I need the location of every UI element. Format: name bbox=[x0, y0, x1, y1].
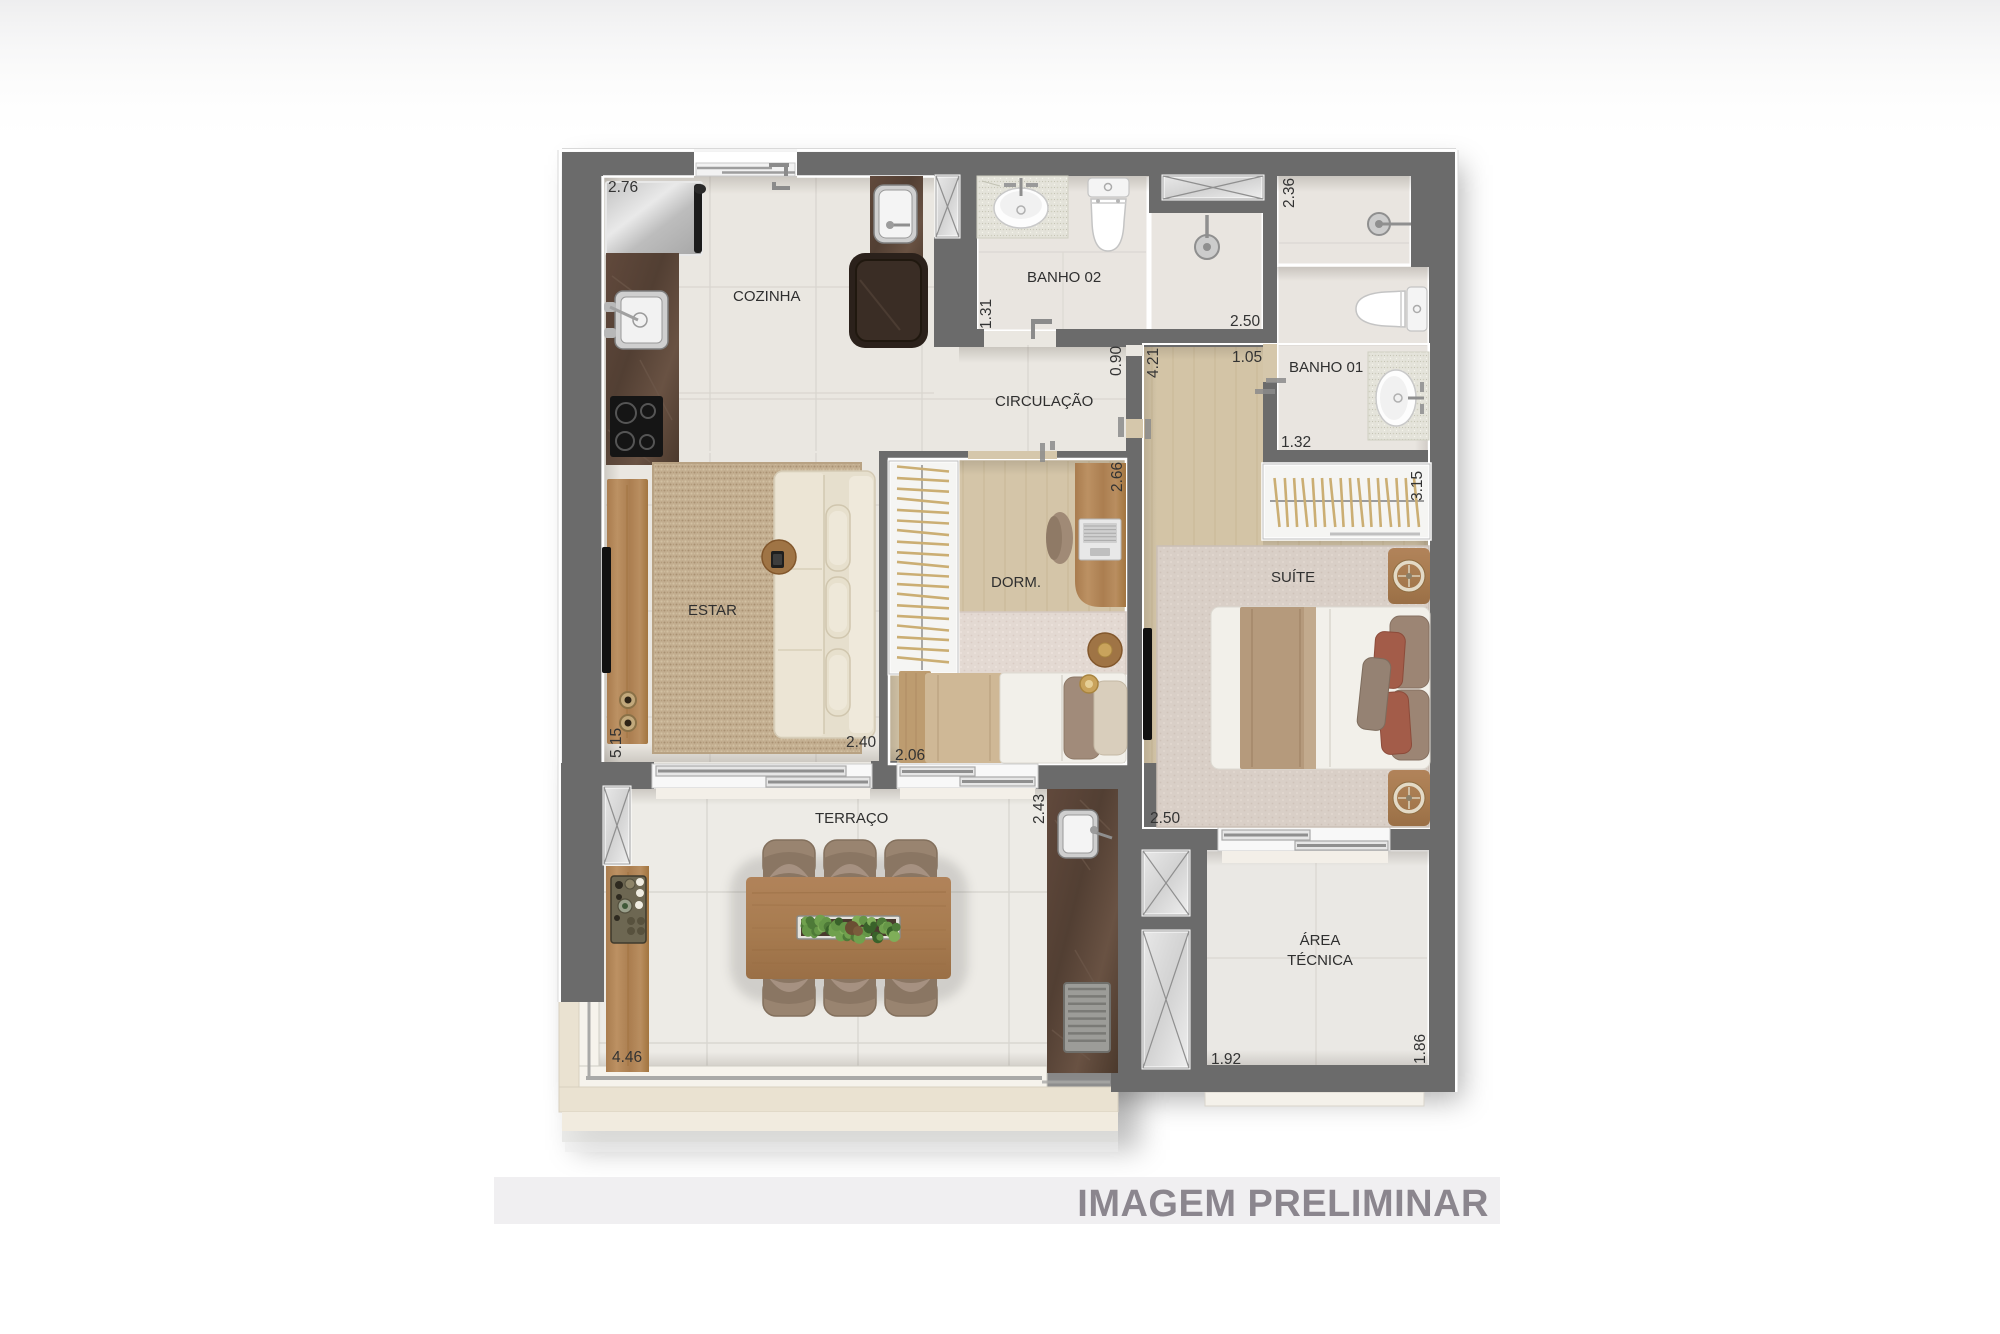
svg-text:ESTAR: ESTAR bbox=[688, 602, 737, 619]
svg-text:TERRAÇO: TERRAÇO bbox=[815, 810, 888, 827]
svg-text:4.46: 4.46 bbox=[612, 1049, 642, 1066]
svg-text:2.50: 2.50 bbox=[1150, 810, 1181, 827]
svg-text:2.06: 2.06 bbox=[895, 747, 925, 764]
svg-text:BANHO 01: BANHO 01 bbox=[1289, 359, 1363, 376]
svg-text:2.36: 2.36 bbox=[1281, 178, 1298, 208]
svg-text:5.15: 5.15 bbox=[608, 728, 625, 758]
svg-text:BANHO 02: BANHO 02 bbox=[1027, 269, 1101, 286]
svg-text:TÉCNICA: TÉCNICA bbox=[1287, 952, 1353, 969]
svg-text:1.92: 1.92 bbox=[1211, 1051, 1241, 1068]
svg-text:0.90: 0.90 bbox=[1108, 345, 1125, 376]
svg-text:3.15: 3.15 bbox=[1409, 471, 1426, 501]
svg-text:2.43: 2.43 bbox=[1031, 794, 1048, 824]
svg-text:2.50: 2.50 bbox=[1230, 313, 1261, 330]
svg-text:2.66: 2.66 bbox=[1109, 462, 1126, 492]
svg-text:1.32: 1.32 bbox=[1281, 434, 1311, 451]
svg-text:IMAGEM PRELIMINAR: IMAGEM PRELIMINAR bbox=[1077, 1183, 1489, 1225]
svg-text:SUÍTE: SUÍTE bbox=[1271, 569, 1315, 586]
svg-text:1.86: 1.86 bbox=[1412, 1034, 1429, 1064]
svg-text:2.76: 2.76 bbox=[608, 179, 638, 196]
svg-text:COZINHA: COZINHA bbox=[733, 288, 801, 305]
svg-text:1.05: 1.05 bbox=[1232, 349, 1262, 366]
svg-text:CIRCULAÇÃO: CIRCULAÇÃO bbox=[995, 393, 1093, 410]
svg-text:DORM.: DORM. bbox=[991, 574, 1041, 591]
svg-text:2.40: 2.40 bbox=[846, 734, 877, 751]
svg-text:4.21: 4.21 bbox=[1145, 348, 1162, 378]
svg-text:ÁREA: ÁREA bbox=[1300, 932, 1341, 949]
svg-text:1.31: 1.31 bbox=[978, 299, 995, 329]
